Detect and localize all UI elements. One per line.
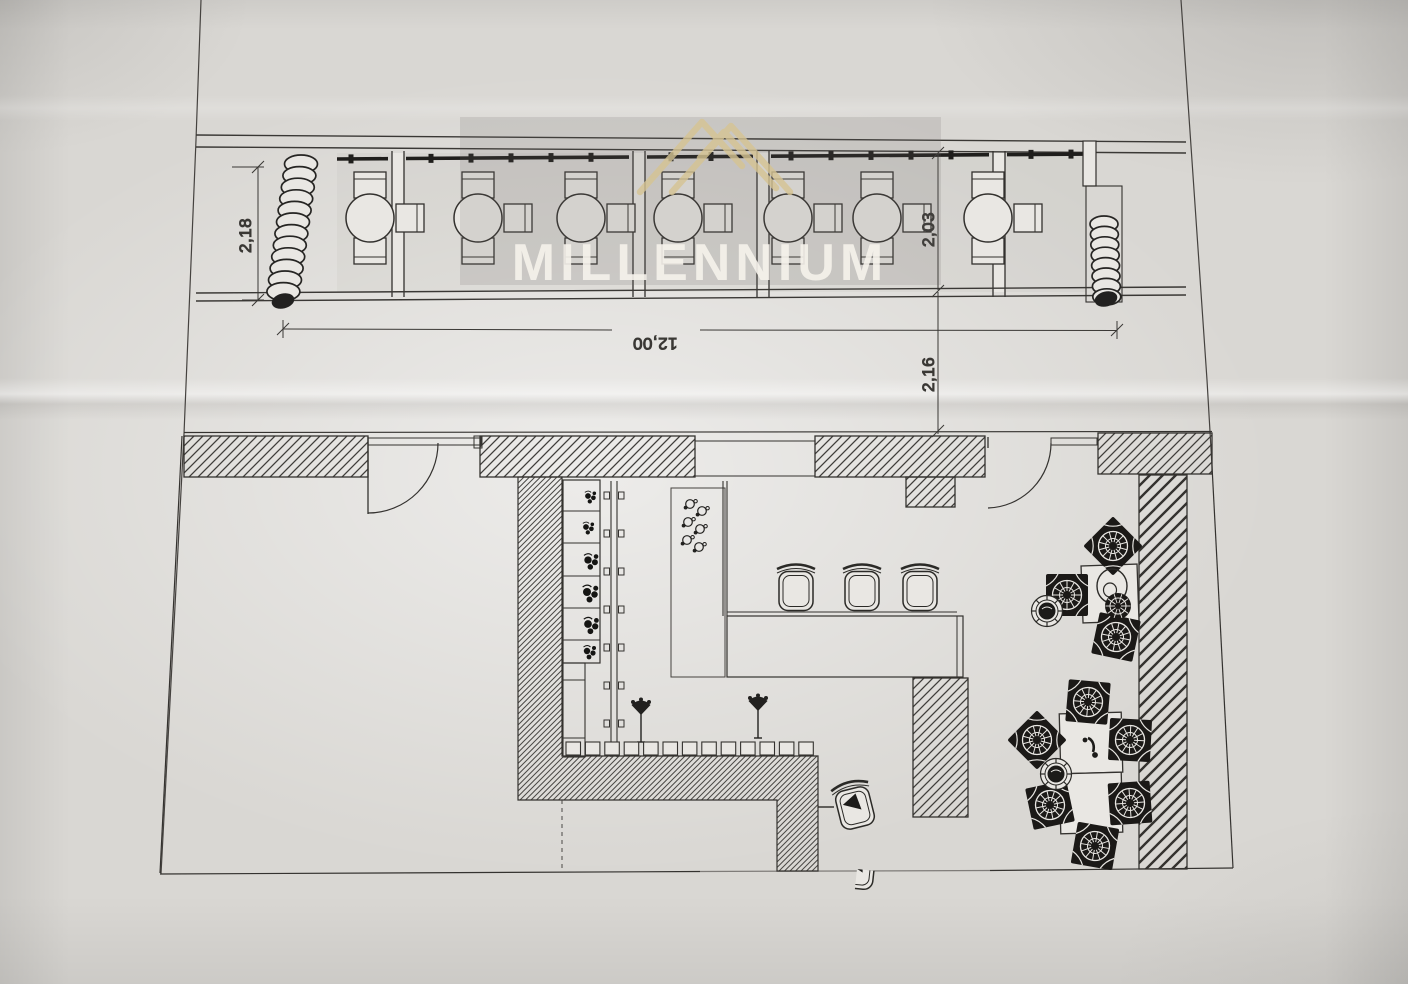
counter-bracket [619,530,625,537]
bar-top-tile [566,742,581,755]
wicker-chair [1091,612,1141,662]
bar-top-tile [585,742,600,755]
coffee-cup [684,500,698,510]
counter-bracket [604,644,610,651]
bar-top-tile [605,742,620,755]
wicker-chair [1108,781,1153,826]
coffee-cup [696,507,710,517]
bar-front-tile-row [566,742,813,755]
bar-top-tile [663,742,678,755]
wall-segment [815,436,985,477]
bar-top-tile [779,742,794,755]
wicker-chair [1108,718,1152,762]
counter-bracket [604,530,610,537]
bar-top-tile [624,742,639,755]
awning-tick [1069,150,1074,159]
bar-stool [836,841,879,891]
back-bar-shelves [563,480,600,757]
photographed-floor-plan: 2,18 12,00 2,03 2,16 [0,0,1408,984]
shelf-equipment [583,585,599,602]
coffee-cup [681,536,695,546]
rolled-awning-coil [1090,216,1121,309]
bar-service-counter [611,481,617,757]
bar-top-tile [682,742,697,755]
floor-plan-drawing: 2,18 12,00 2,03 2,16 [0,0,1408,984]
wall-segment [184,436,368,477]
counter-bracket [604,568,610,575]
round-stool [1041,759,1072,790]
counter-bracket [619,682,625,689]
terrace-post [1083,141,1096,186]
wicker-chair [1071,822,1120,871]
awning-tick [349,154,354,163]
coffee-cup [694,525,708,535]
bar-top-tile [760,742,775,755]
right-frame-fold-line [1181,0,1212,466]
awning-tick [1029,150,1034,159]
wall-segment [1098,433,1212,474]
watermark-text: MILLENNIUM [512,234,888,292]
counter-bracket [619,606,625,613]
bar-top-tile [702,742,717,755]
bar-stool [777,565,815,611]
counter-bracket [619,568,625,575]
wicker-chair [1065,679,1111,725]
counter-bracket [619,720,625,727]
bar-stool [830,778,878,832]
awning-tick [949,150,954,159]
counter-bracket [619,644,625,651]
shelf-equipment [585,491,596,504]
counter-bracket [604,492,610,499]
beer-tap [631,698,651,743]
dimension-terrace-gap: 2,16 [919,357,938,392]
bar-stool [901,565,939,611]
bar-top-tile [799,742,814,755]
counter-support-brackets [604,492,624,727]
beer-tap [748,694,768,739]
bar-top-tile [721,742,736,755]
wall-stub [906,477,955,507]
espresso-machines-and-bottles [583,491,599,659]
dimension-terrace-width: 12,00 [632,334,677,353]
rolled-awning-coil [267,155,318,311]
round-stool [1032,596,1063,627]
bar-top-tile [644,742,659,755]
counter-bracket [604,682,610,689]
entrance-door-right [988,437,1097,508]
bar-top-tile [741,742,756,755]
shelf-equipment [584,617,599,634]
interior-plan [160,432,1233,891]
counter-bracket [619,492,625,499]
bar-stool [843,565,881,611]
pillar [913,678,968,817]
shelf-equipment [584,646,597,660]
shelf-equipment [584,554,598,570]
entrance-door-left [368,436,482,514]
window-band [695,441,815,476]
coffee-cup [693,543,707,553]
shelf-equipment [583,522,594,535]
potted-plant [1105,593,1131,619]
dimension-terrace-depth-left: 2,18 [236,218,255,253]
coffee-cup [682,518,696,528]
awning-tick [429,154,434,163]
counter-bracket [604,606,610,613]
counter-bracket [604,720,610,727]
wall-segment [480,436,695,477]
glassware-cups [631,500,768,743]
watermark: MILLENNIUM [460,117,941,292]
